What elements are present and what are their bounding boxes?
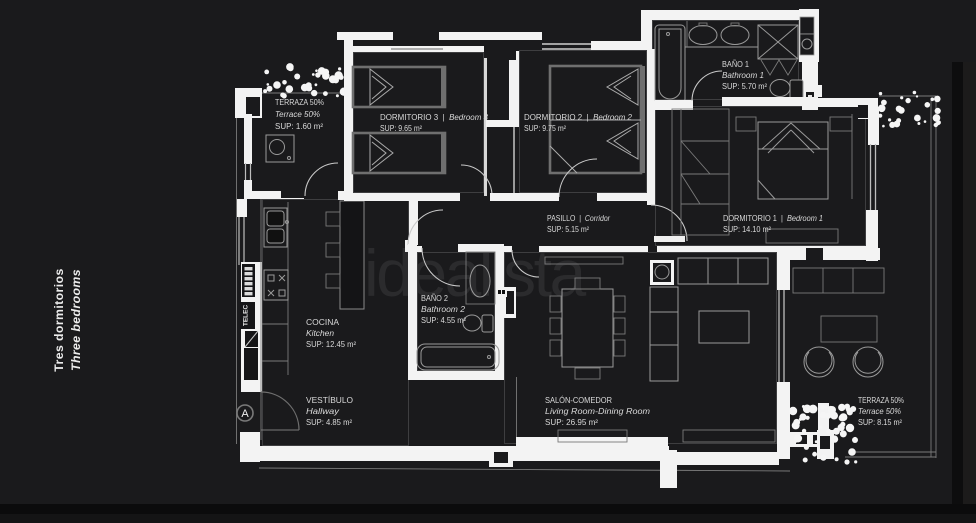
svg-text:SUP: 5.70 m²: SUP: 5.70 m²	[722, 82, 767, 91]
svg-text:SUP: 4.85 m²: SUP: 4.85 m²	[306, 418, 352, 427]
svg-text:Living Room-Dining Room: Living Room-Dining Room	[545, 407, 650, 416]
svg-text:SUP: 4.55 m²: SUP: 4.55 m²	[421, 316, 466, 325]
svg-text:SUP: 26.95 m²: SUP: 26.95 m²	[545, 418, 598, 427]
svg-text:BAÑO 2: BAÑO 2	[421, 294, 449, 303]
svg-text:PASILLO | Corridor: PASILLO | Corridor	[547, 214, 610, 223]
svg-text:SALÓN-COMEDOR: SALÓN-COMEDOR	[545, 396, 612, 405]
svg-text:SUP: 9.75 m²: SUP: 9.75 m²	[524, 124, 566, 133]
svg-text:SUP: 8.15 m²: SUP: 8.15 m²	[858, 418, 902, 427]
svg-text:Kitchen: Kitchen	[306, 329, 335, 338]
svg-text:Bathroom 2: Bathroom 2	[421, 305, 466, 314]
svg-text:Terrace 50%: Terrace 50%	[275, 110, 320, 119]
svg-text:COCINA: COCINA	[306, 318, 340, 327]
svg-text:SUP: 12.45 m²: SUP: 12.45 m²	[306, 340, 356, 349]
svg-text:Hallway: Hallway	[306, 407, 340, 416]
svg-text:SUP: 1.60 m²: SUP: 1.60 m²	[275, 122, 323, 131]
svg-text:TELEC: TELEC	[243, 305, 250, 327]
svg-text:SUP: 9.65 m²: SUP: 9.65 m²	[380, 124, 422, 133]
svg-text:A: A	[241, 408, 249, 420]
svg-text:VESTÍBULO: VESTÍBULO	[306, 396, 353, 405]
svg-text:Terrace 50%: Terrace 50%	[858, 407, 901, 416]
svg-text:DORMITORIO 1 | Bedroom 1: DORMITORIO 1 | Bedroom 1	[723, 214, 823, 223]
svg-text:TERRAZA 50%: TERRAZA 50%	[275, 98, 324, 107]
svg-text:Three bedrooms: Three bedrooms	[69, 269, 83, 371]
svg-text:Tres dormitorios: Tres dormitorios	[52, 268, 66, 371]
svg-text:DORMITORIO 2 | Bedroom 2: DORMITORIO 2 | Bedroom 2	[524, 113, 633, 122]
svg-text:BAÑO 1: BAÑO 1	[722, 60, 750, 69]
svg-text:SUP: 5.15 m²: SUP: 5.15 m²	[547, 225, 589, 234]
svg-text:SUP: 14.10 m²: SUP: 14.10 m²	[723, 225, 771, 234]
svg-text:TERRAZA 50%: TERRAZA 50%	[858, 396, 904, 405]
svg-text:Bathroom 1: Bathroom 1	[722, 71, 764, 80]
svg-text:DORMITORIO 3 | Bedroom 3: DORMITORIO 3 | Bedroom 3	[380, 113, 489, 122]
